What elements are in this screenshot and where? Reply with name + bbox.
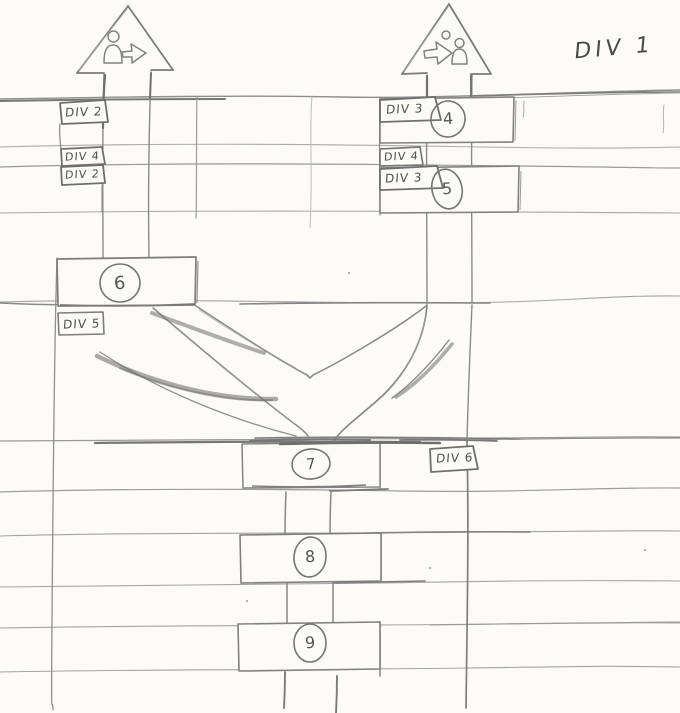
node-7-number: 7 xyxy=(305,457,316,473)
right-up-arrow xyxy=(402,4,491,74)
right-tag-div3-2: DIV 3 xyxy=(385,171,423,184)
merge-curves xyxy=(97,306,497,444)
right-tag-div3: DIV 3 xyxy=(386,102,424,115)
node-5-number: 5 xyxy=(441,181,452,198)
node-box-6 xyxy=(57,257,198,306)
left-tag-div4: DIV 4 xyxy=(65,150,100,162)
right-tag-div4: DIV 4 xyxy=(384,150,419,162)
sketch-canvas: DIV 1 DIV 2 DIV 4 DIV 2 DIV 3 DIV 4 DIV … xyxy=(0,0,680,713)
node-6-number: 6 xyxy=(113,275,126,294)
left-tag-div2-2: DIV 2 xyxy=(65,168,100,180)
left-tag-div2: DIV 2 xyxy=(65,105,103,118)
left-up-arrow xyxy=(77,6,173,73)
div6-label: DIV 6 xyxy=(436,451,474,464)
vertical-guidelines xyxy=(52,72,664,713)
person-exit-right-icon xyxy=(104,31,146,63)
div5-label: DIV 5 xyxy=(63,317,101,330)
arrow-enter-person-icon xyxy=(424,31,467,64)
node-9-number: 9 xyxy=(304,635,315,652)
node-8-number: 8 xyxy=(304,549,315,566)
node-4-number: 4 xyxy=(442,111,453,128)
